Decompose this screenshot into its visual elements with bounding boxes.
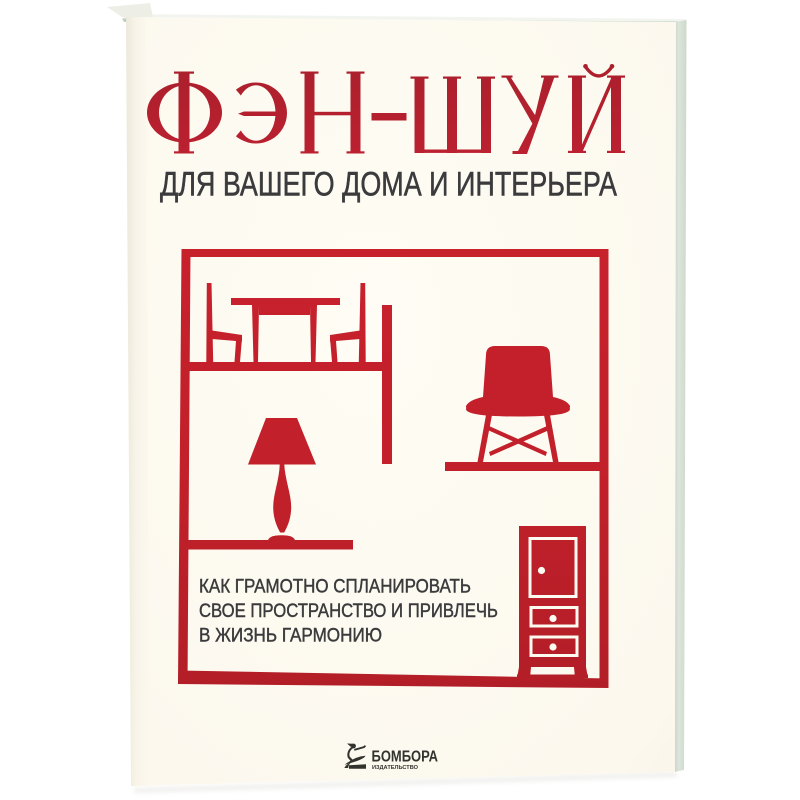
svg-text:ДЛЯ ВАШЕГО ДОМА И ИНТЕРЬЕРА: ДЛЯ ВАШЕГО ДОМА И ИНТЕРЬЕРА: [160, 166, 617, 204]
svg-text:СВОЕ ПРОСТРАНСТВО И ПРИВЛЕЧЬ: СВОЕ ПРОСТРАНСТВО И ПРИВЛЕЧЬ: [199, 600, 498, 622]
svg-text:В ЖИЗНЬ ГАРМОНИЮ: В ЖИЗНЬ ГАРМОНИЮ: [199, 625, 382, 647]
svg-text:ИЗДАТЕЛЬСТВО: ИЗДАТЕЛЬСТВО: [372, 765, 418, 771]
svg-text:КАК ГРАМОТНО СПЛАНИРОВАТЬ: КАК ГРАМОТНО СПЛАНИРОВАТЬ: [199, 576, 471, 598]
svg-text:БОМБОРА: БОМБОРА: [372, 749, 439, 766]
